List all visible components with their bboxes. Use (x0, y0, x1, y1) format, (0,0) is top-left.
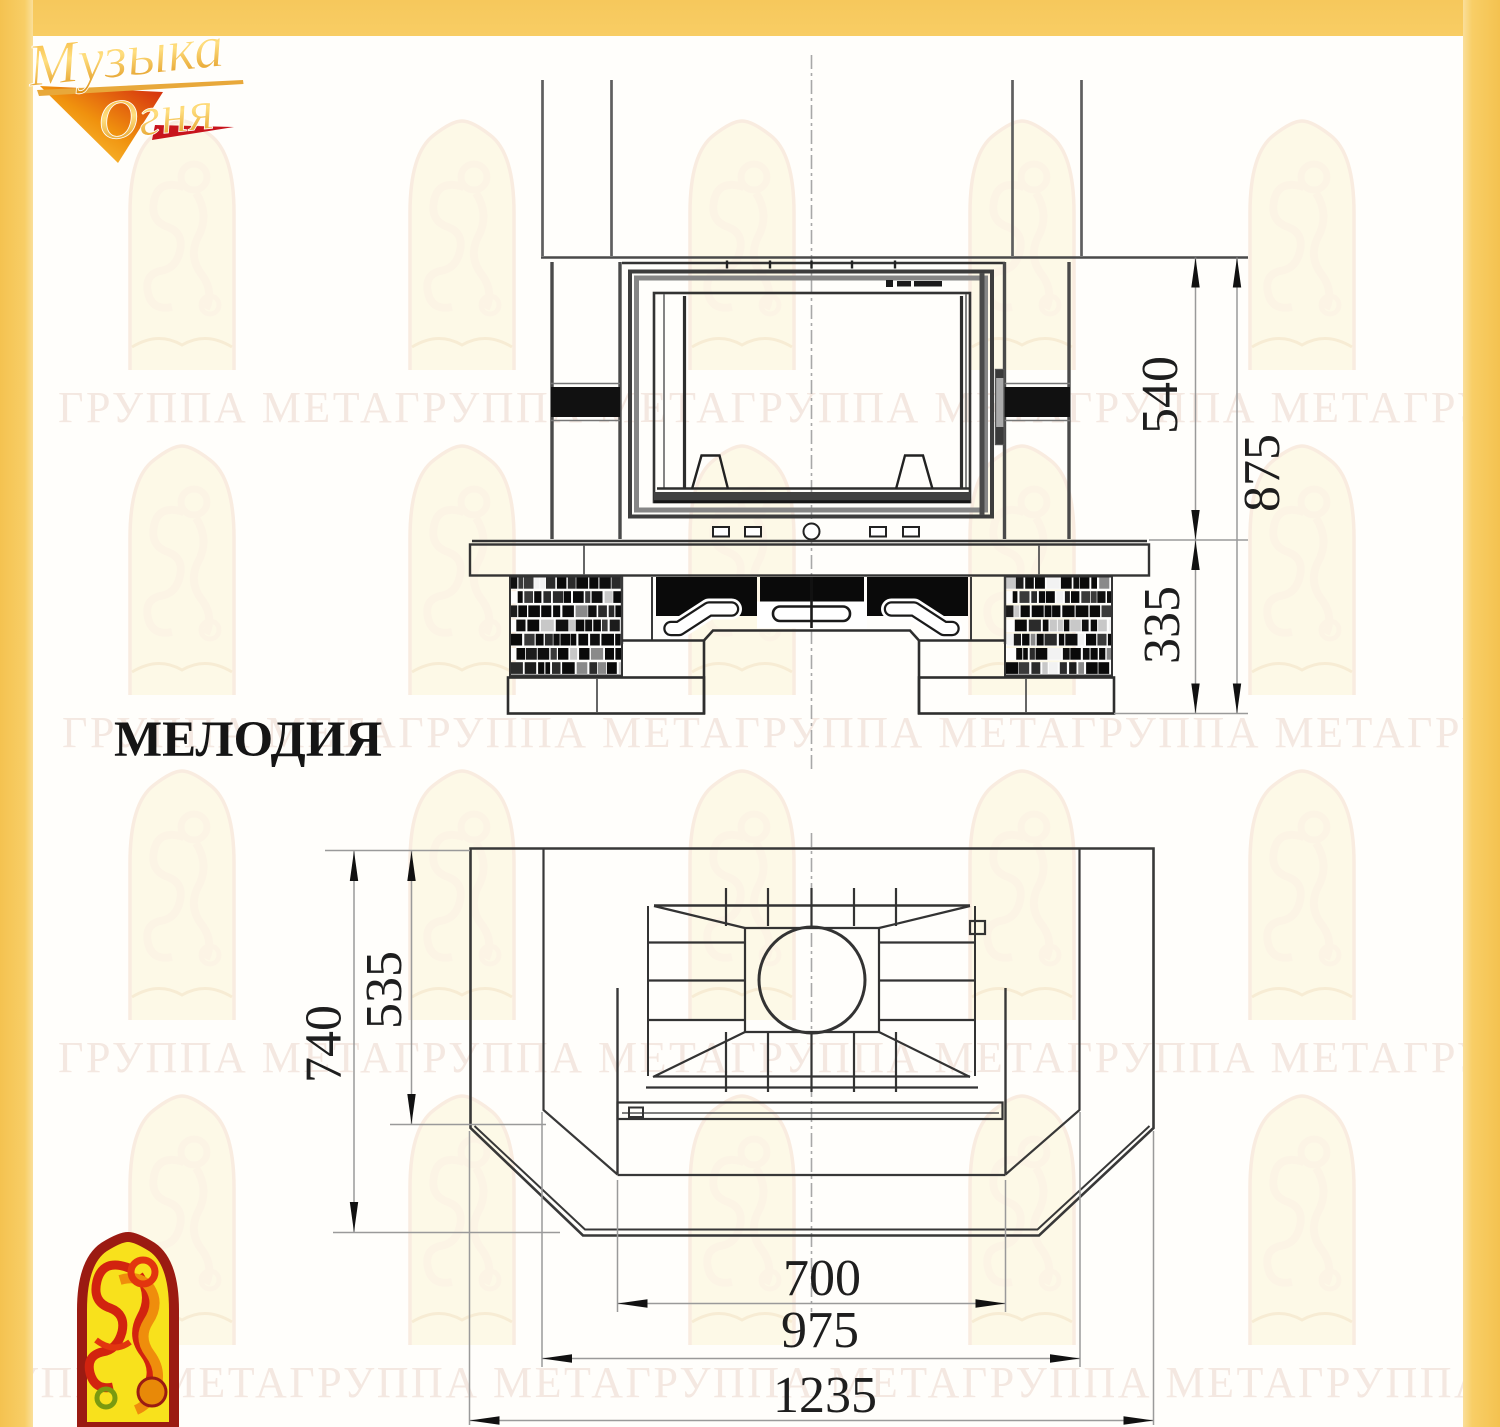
svg-text:Огня: Огня (95, 79, 217, 153)
svg-text:335: 335 (1134, 586, 1191, 664)
svg-text:975: 975 (781, 1302, 859, 1359)
svg-text:740: 740 (296, 1005, 353, 1083)
svg-text:ГРУППА МЕТАГРУППА МЕТАГРУППА М: ГРУППА МЕТАГРУППА МЕТАГРУППА МЕТАГРУППА … (0, 1358, 1500, 1407)
svg-text:700: 700 (783, 1250, 861, 1307)
svg-text:540: 540 (1132, 356, 1189, 434)
svg-text:875: 875 (1234, 434, 1291, 512)
svg-text:ГРУППА МЕТАГРУППА МЕТАГРУППА М: ГРУППА МЕТАГРУППА МЕТАГРУППА МЕТАГРУППА … (58, 383, 1500, 432)
svg-text:535: 535 (356, 951, 413, 1029)
svg-text:1235: 1235 (773, 1367, 877, 1424)
svg-text:МЕЛОДИЯ: МЕЛОДИЯ (114, 712, 382, 768)
svg-text:ГРУППА МЕТАГРУППА МЕТАГРУППА М: ГРУППА МЕТАГРУППА МЕТАГРУППА МЕТАГРУППА … (58, 1033, 1500, 1082)
